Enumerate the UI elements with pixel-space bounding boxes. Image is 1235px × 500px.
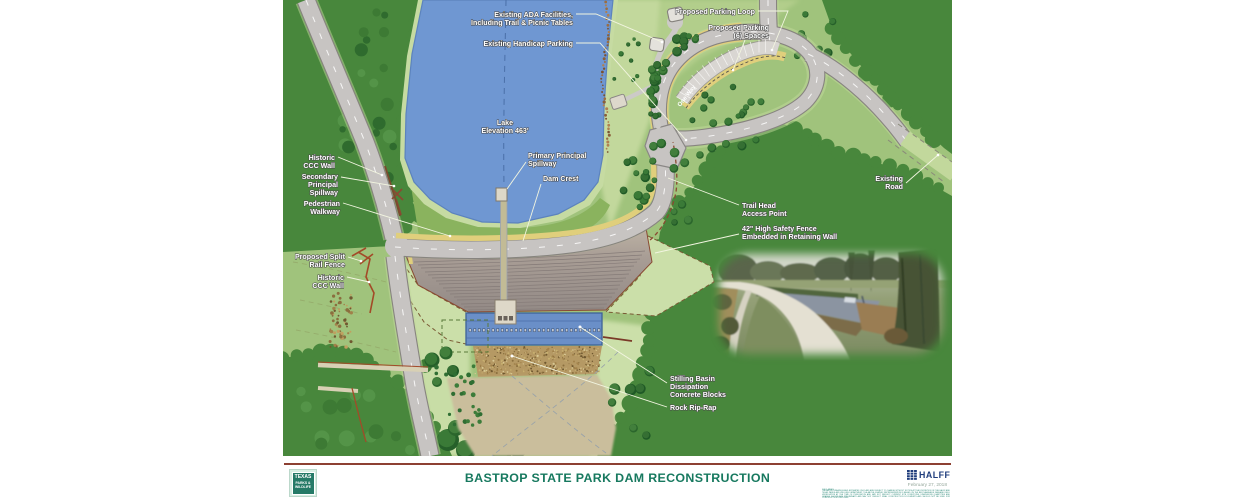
svg-text:Embedded in Retaining Wall: Embedded in Retaining Wall [742, 233, 837, 241]
svg-text:Dam Crest: Dam Crest [543, 175, 579, 183]
svg-text:CCC Wall: CCC Wall [303, 162, 335, 170]
svg-text:Proposed Split: Proposed Split [295, 253, 346, 261]
svg-text:Rail Fence: Rail Fence [310, 261, 346, 269]
svg-text:Lake: Lake [497, 119, 513, 127]
svg-text:Principal: Principal [308, 181, 338, 189]
svg-text:Concrete Blocks: Concrete Blocks [670, 391, 726, 399]
svg-text:Secondary: Secondary [302, 173, 338, 181]
svg-text:Walkway: Walkway [310, 208, 340, 216]
svg-text:Existing: Existing [875, 175, 903, 183]
svg-text:Existing Handicap Parking: Existing Handicap Parking [484, 40, 573, 48]
svg-text:Access Point: Access Point [742, 210, 787, 218]
svg-text:Primary Principal: Primary Principal [528, 152, 586, 160]
svg-text:Historic: Historic [309, 154, 335, 162]
svg-text:Spillway: Spillway [528, 160, 556, 168]
svg-text:Existing ADA Facilities,: Existing ADA Facilities, [494, 11, 573, 19]
svg-text:Historic: Historic [318, 274, 344, 282]
svg-text:42" High Safety Fence: 42" High Safety Fence [742, 225, 817, 233]
svg-text:CCC Wall: CCC Wall [312, 282, 344, 290]
svg-text:Proposed Parking Loop: Proposed Parking Loop [675, 8, 756, 16]
svg-text:Stilling Basin: Stilling Basin [670, 375, 715, 383]
svg-text:Proposed Parking: Proposed Parking [708, 24, 769, 32]
svg-text:Trail Head: Trail Head [742, 202, 776, 210]
svg-text:Elevation 463': Elevation 463' [481, 127, 528, 135]
svg-text:(6) Spaces: (6) Spaces [734, 32, 770, 40]
svg-text:Dissipation: Dissipation [670, 383, 708, 391]
svg-text:Including Trail & Picnic Table: Including Trail & Picnic Tables [471, 19, 573, 27]
svg-text:Pedestrian: Pedestrian [304, 200, 340, 208]
svg-text:Rock Rip-Rap: Rock Rip-Rap [670, 404, 717, 412]
svg-text:Spillway: Spillway [310, 189, 338, 197]
svg-text:Road: Road [885, 183, 903, 191]
